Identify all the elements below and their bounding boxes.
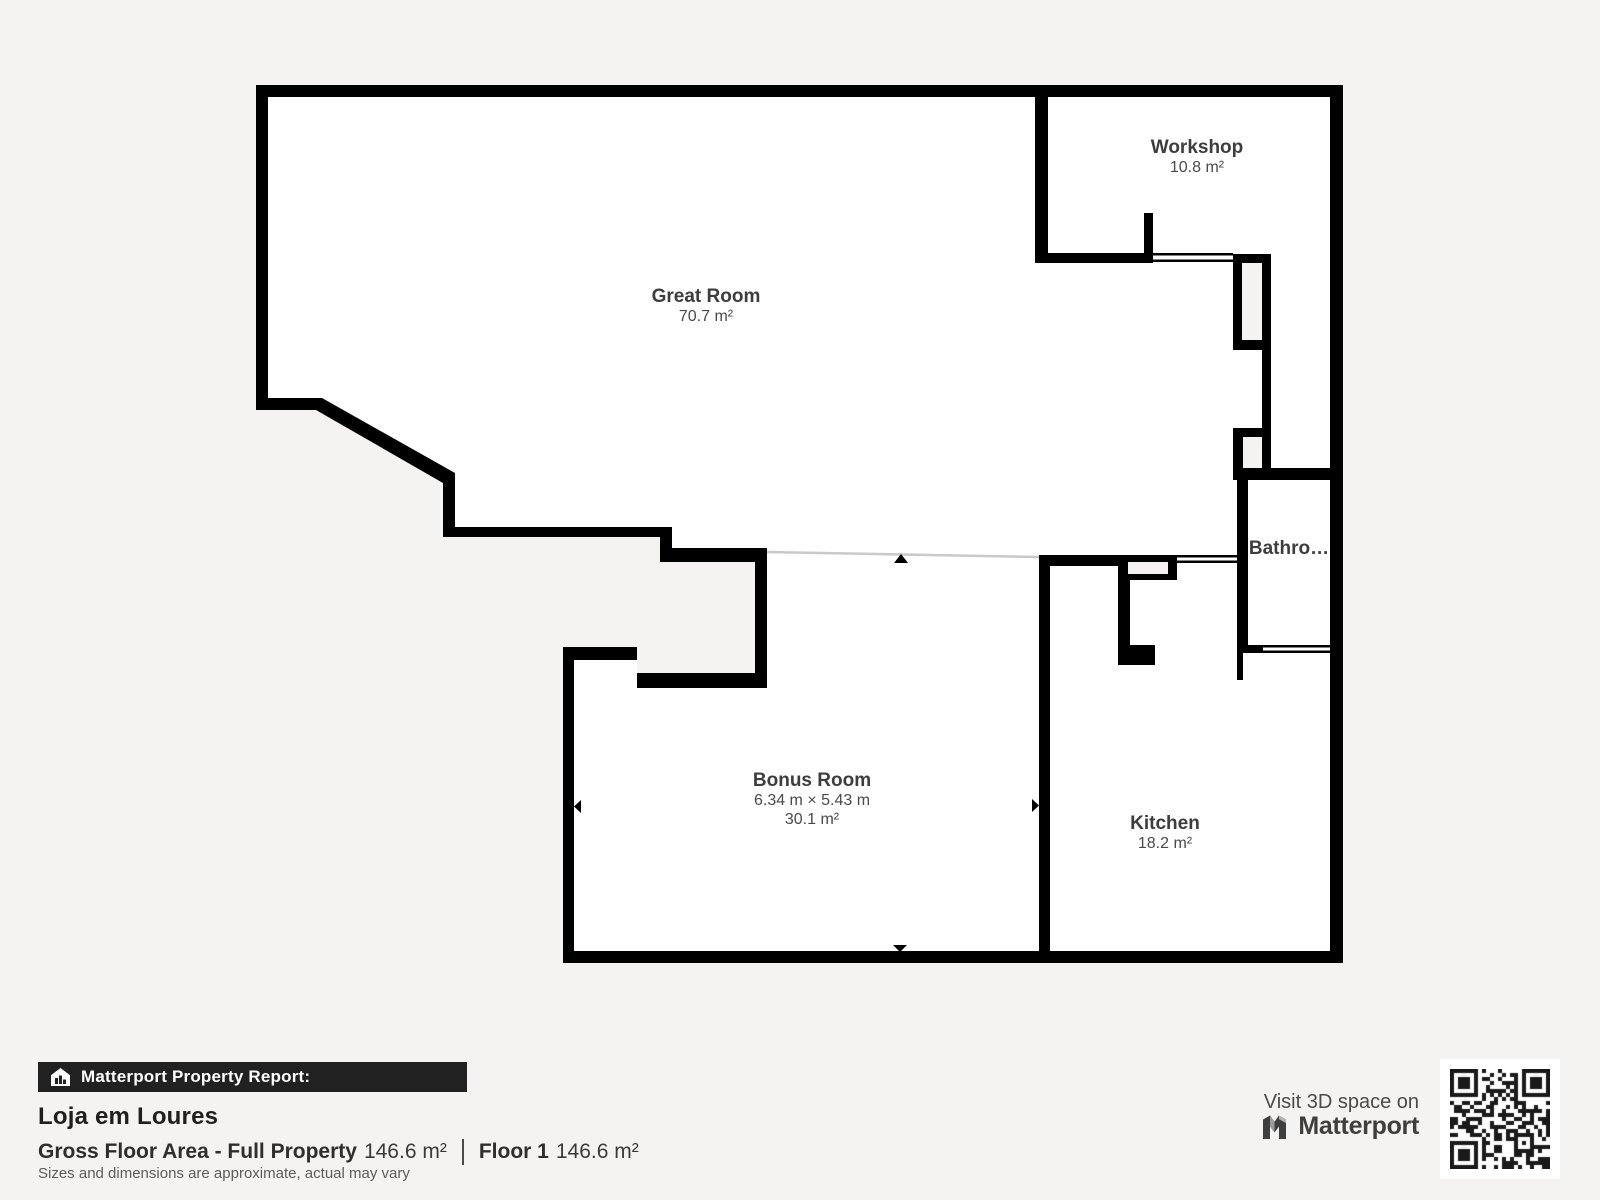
kitchen-left-wall: [1039, 555, 1050, 951]
report-bar-label: Matterport Property Report:: [81, 1067, 310, 1087]
floor-plan: [0, 0, 1600, 1200]
workshop-door-line: [1153, 260, 1233, 263]
bathroom-top-wall: [1233, 468, 1330, 480]
floor-value: 146.6 m²: [556, 1140, 639, 1164]
vertical-wall-right: [1262, 254, 1271, 480]
report-bar: Matterport Property Report:: [38, 1062, 467, 1092]
workshop-stub-wall: [1144, 213, 1153, 257]
kitchen-stub-foot: [1118, 645, 1155, 665]
kitchen-wall-void: [1128, 562, 1168, 574]
floor-label: Floor 1: [479, 1140, 549, 1164]
disclaimer-text: Sizes and dimensions are approximate, ac…: [38, 1165, 410, 1182]
qr-code: [1440, 1059, 1560, 1179]
property-name: Loja em Loures: [38, 1103, 218, 1131]
floor-interior: [268, 97, 1330, 951]
house-report-icon: [50, 1067, 71, 1087]
matterport-wordmark: Matterport: [1298, 1112, 1419, 1141]
area-summary: Gross Floor Area - Full Property 146.6 m…: [38, 1139, 639, 1165]
matterport-m-icon: [1260, 1113, 1289, 1141]
matterport-logo: Matterport: [1260, 1112, 1419, 1141]
closet-void: [1243, 437, 1262, 468]
gross-floor-area-value: 146.6 m²: [364, 1140, 447, 1164]
divider: [462, 1139, 464, 1165]
bathroom-stub-wall: [1237, 653, 1243, 680]
workshop-left-wall: [1035, 97, 1048, 263]
bathroom-left-wall: [1237, 480, 1248, 653]
bathroom-bottom-wall: [1248, 645, 1263, 653]
workshop-bottom-wall: [1035, 253, 1153, 263]
gross-floor-area-label: Gross Floor Area - Full Property: [38, 1140, 357, 1164]
bathroom-door-line: [1263, 645, 1330, 648]
qr-code-canvas: [1450, 1069, 1550, 1169]
visit-3d-label: Visit 3D space on: [1264, 1091, 1419, 1114]
kitchen-door-line: [1177, 561, 1237, 564]
workshop-door-line: [1153, 253, 1233, 256]
bathroom-door-line: [1263, 651, 1330, 654]
closet-top-wall: [1233, 428, 1262, 437]
shaft-void: [1242, 263, 1262, 340]
kitchen-door-line: [1177, 555, 1237, 558]
